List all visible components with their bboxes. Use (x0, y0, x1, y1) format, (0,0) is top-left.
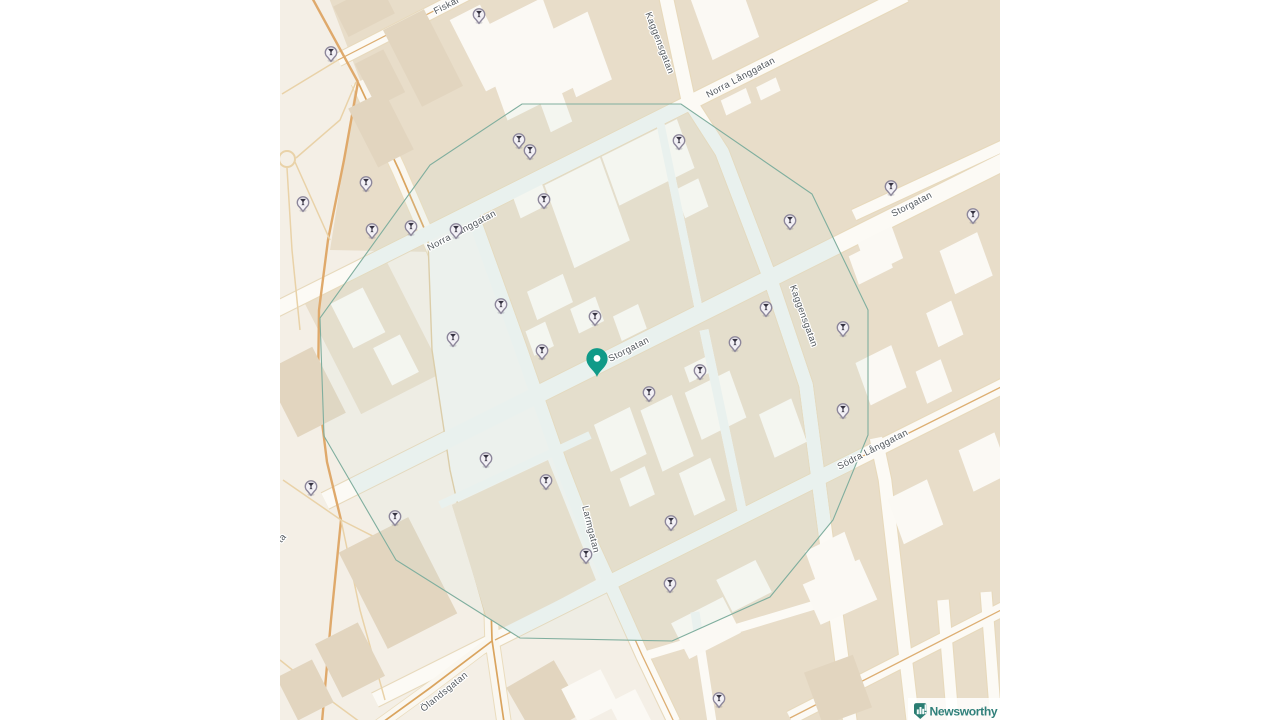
svg-text:Newsworthy: Newsworthy (930, 704, 998, 718)
